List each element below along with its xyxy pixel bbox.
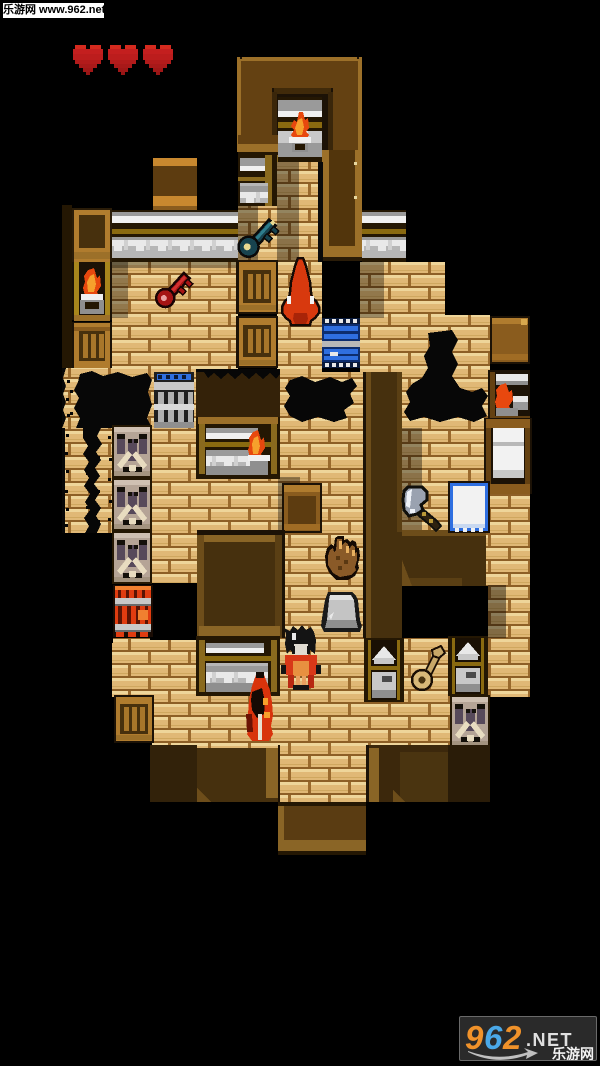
- svg-text:9: 9: [465, 1019, 484, 1056]
- svg-text:乐游网: 乐游网: [552, 1046, 594, 1060]
- svg-text:2: 2: [502, 1019, 522, 1056]
- svg-text:6: 6: [484, 1019, 503, 1056]
